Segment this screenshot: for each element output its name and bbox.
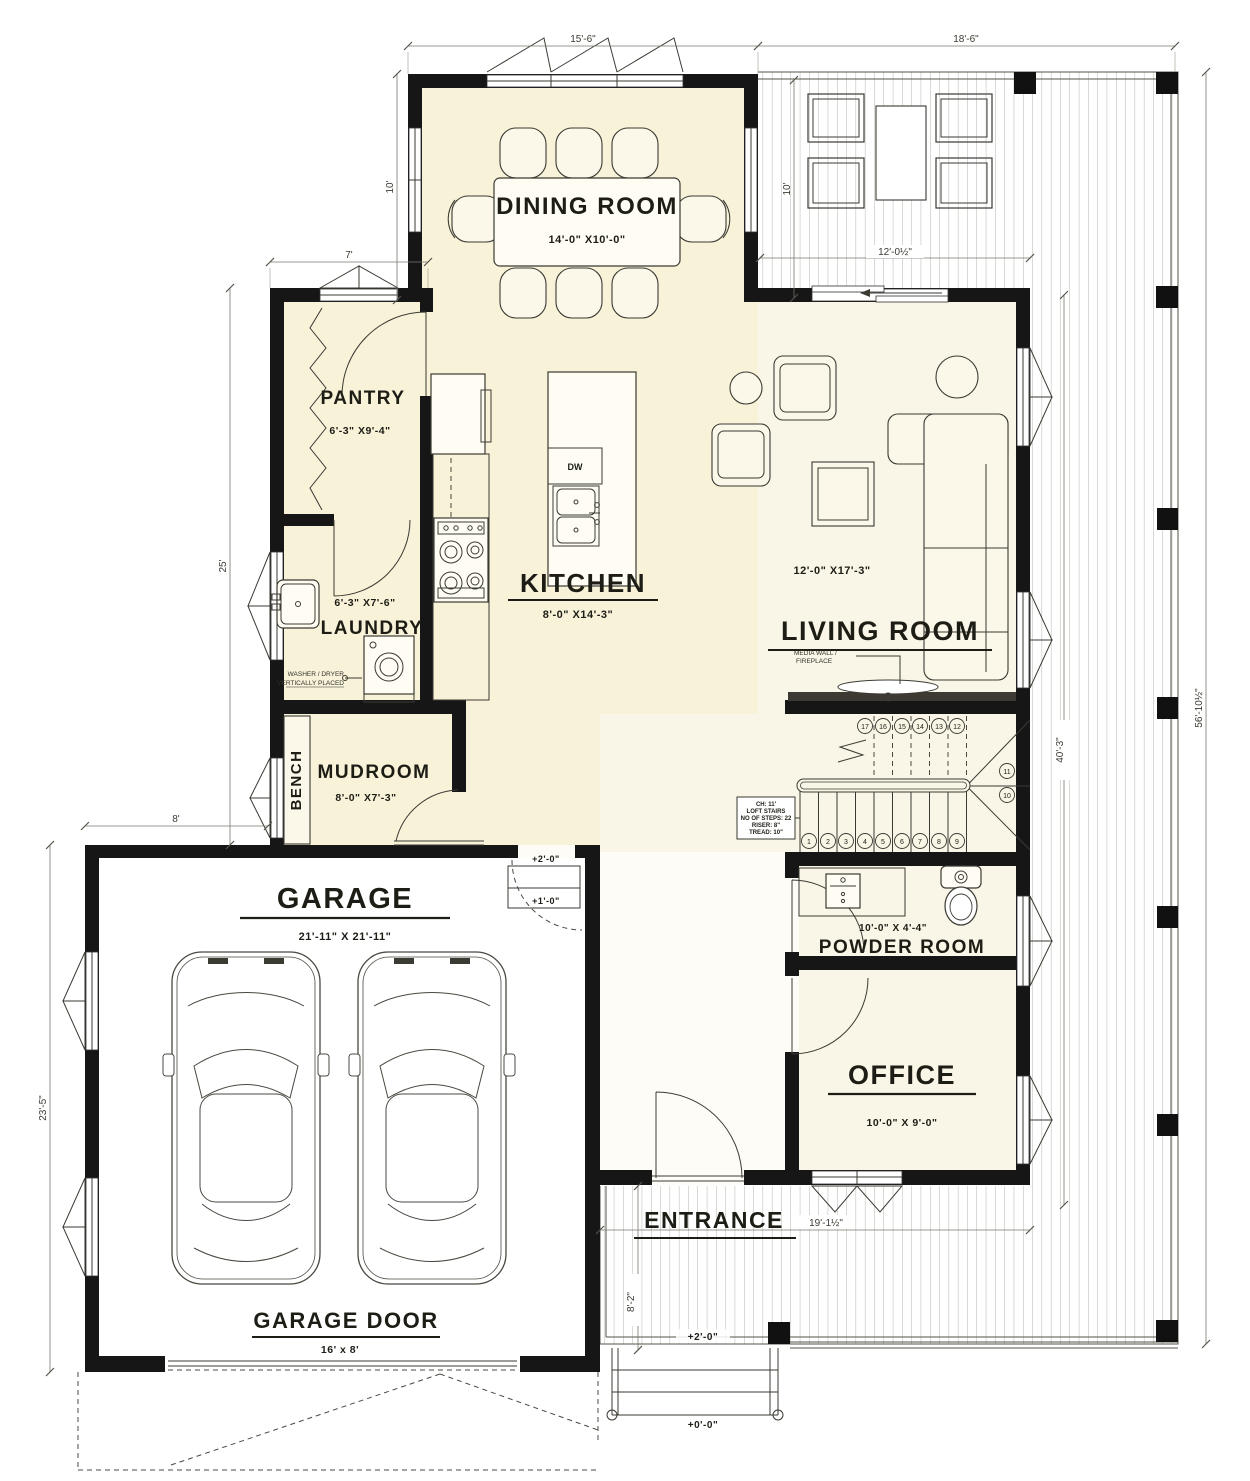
dim-overall-height: 56'-10½" bbox=[1194, 688, 1205, 728]
car bbox=[163, 952, 329, 1284]
stair-number: 16 bbox=[879, 724, 887, 731]
coffee-table bbox=[812, 462, 874, 526]
stair-note-line: CH: 11' bbox=[756, 802, 777, 808]
stair-number: 6 bbox=[900, 839, 904, 846]
pantry-size: 6'-3" X9'-4" bbox=[329, 425, 390, 437]
stair-number: 12 bbox=[953, 724, 961, 731]
dim-pantry-width: 7' bbox=[345, 250, 353, 261]
dim-deck-height: 40'-3" bbox=[1055, 737, 1066, 763]
powder-room-size: 10'-0" X 4'-4" bbox=[859, 923, 927, 934]
powder-room-label: POWDER ROOM bbox=[819, 937, 985, 958]
dim-entrance-width: 19'-1½" bbox=[809, 1218, 843, 1229]
office-label: OFFICE bbox=[848, 1060, 956, 1090]
elev-garage-step: +1'-0" bbox=[532, 896, 560, 906]
driveway bbox=[78, 1372, 598, 1470]
dim-deck-depth: 10' bbox=[782, 182, 793, 195]
kitchen-label: KITCHEN bbox=[520, 568, 646, 598]
media-wall-note-line2: FIREPLACE bbox=[796, 658, 833, 665]
laundry-size: 6'-3" X7'-6" bbox=[334, 597, 395, 609]
stair-number: 2 bbox=[826, 839, 830, 846]
side-table bbox=[730, 372, 762, 404]
dishwasher-label: DW bbox=[568, 462, 583, 472]
stair-number: 5 bbox=[881, 839, 885, 846]
entry-steps bbox=[607, 1348, 783, 1420]
toilet bbox=[941, 866, 981, 925]
kitchen-island bbox=[548, 372, 636, 586]
floor-plan-page: CH: 11' LOFT STAIRS NO OF STEPS: 22 RISE… bbox=[0, 0, 1250, 1476]
garage-label: GARAGE bbox=[277, 883, 413, 915]
powder-sink bbox=[826, 874, 860, 908]
tv bbox=[838, 680, 938, 694]
elev-entry-deck: +2'-0" bbox=[688, 1332, 718, 1343]
stair-number: 1 bbox=[807, 839, 811, 846]
washer-note-line2: VERTICALLY PLACED bbox=[277, 680, 344, 687]
range bbox=[434, 518, 488, 602]
living-room-size: 12'-0" X17'-3" bbox=[793, 565, 870, 577]
washer-note-line1: WASHER / DRYER bbox=[288, 671, 345, 678]
stair-number: 11 bbox=[1003, 769, 1010, 776]
garage-door-label: GARAGE DOOR bbox=[253, 1308, 438, 1333]
stair-number: 17 bbox=[861, 724, 869, 731]
stair-number: 15 bbox=[898, 724, 906, 731]
stair-number: 13 bbox=[935, 724, 943, 731]
mudroom-size: 8'-0" X7'-3" bbox=[335, 792, 396, 804]
dim-garage-height: 23'-5" bbox=[38, 1095, 49, 1121]
stair-number: 3 bbox=[844, 839, 848, 846]
stair-note-line: LOFT STAIRS bbox=[747, 809, 786, 815]
entrance-label: ENTRANCE bbox=[644, 1207, 784, 1233]
media-wall-note-line1: MEDIA WALL / bbox=[794, 650, 837, 657]
garage-door-size: 16' x 8' bbox=[321, 1344, 359, 1356]
dining-room-size: 14'-0" X10'-0" bbox=[548, 234, 625, 246]
car bbox=[349, 952, 515, 1284]
deck-table bbox=[876, 106, 926, 200]
dim-garage-offset: 8' bbox=[172, 814, 180, 825]
dim-top-left: 15'-6" bbox=[570, 34, 596, 45]
laundry-label: LAUNDRY bbox=[321, 618, 424, 639]
mudroom-label: MUDROOM bbox=[318, 762, 431, 783]
armchair bbox=[774, 356, 836, 420]
floor-plan-svg: CH: 11' LOFT STAIRS NO OF STEPS: 22 RISE… bbox=[0, 0, 1250, 1476]
stair-note-line: NO OF STEPS: 22 bbox=[741, 816, 792, 822]
stair-note-line: TREAD: 10" bbox=[749, 830, 783, 836]
side-table bbox=[936, 356, 978, 398]
office-size: 10'-0" X 9'-0" bbox=[867, 1117, 938, 1129]
dining-room-label: DINING ROOM bbox=[496, 193, 678, 220]
stair-note: CH: 11' LOFT STAIRS NO OF STEPS: 22 RISE… bbox=[737, 797, 800, 839]
stair-number: 14 bbox=[916, 724, 924, 731]
dining-table bbox=[494, 178, 680, 266]
elev-ground: +0'-0" bbox=[688, 1420, 718, 1431]
pantry-label: PANTRY bbox=[321, 388, 406, 409]
bench-label: BENCH bbox=[288, 750, 305, 811]
laundry-sink bbox=[277, 580, 319, 628]
dim-dining-depth: 10' bbox=[385, 180, 396, 193]
refrigerator bbox=[431, 374, 485, 454]
stair-note-line: RISER: 8" bbox=[752, 823, 780, 829]
stair-number: 8 bbox=[937, 839, 941, 846]
stair-number: 7 bbox=[918, 839, 922, 846]
dim-deck-width: 12'-0½" bbox=[878, 247, 912, 258]
elev-garage-landing: +2'-0" bbox=[532, 854, 560, 864]
kitchen-size: 8'-0" X14'-3" bbox=[543, 609, 613, 621]
garage-size: 21'-11" X 21'-11" bbox=[299, 931, 392, 943]
dim-entrance-depth: 8'-2" bbox=[626, 1292, 637, 1312]
stair-handrail bbox=[797, 779, 970, 792]
stair-number: 9 bbox=[955, 839, 959, 846]
living-room-label: LIVING ROOM bbox=[781, 616, 979, 646]
dim-top-right: 18'-6" bbox=[953, 34, 979, 45]
stair-number: 10 bbox=[1003, 793, 1011, 800]
stair-number: 4 bbox=[863, 839, 867, 846]
dim-left-height: 25' bbox=[218, 559, 229, 572]
